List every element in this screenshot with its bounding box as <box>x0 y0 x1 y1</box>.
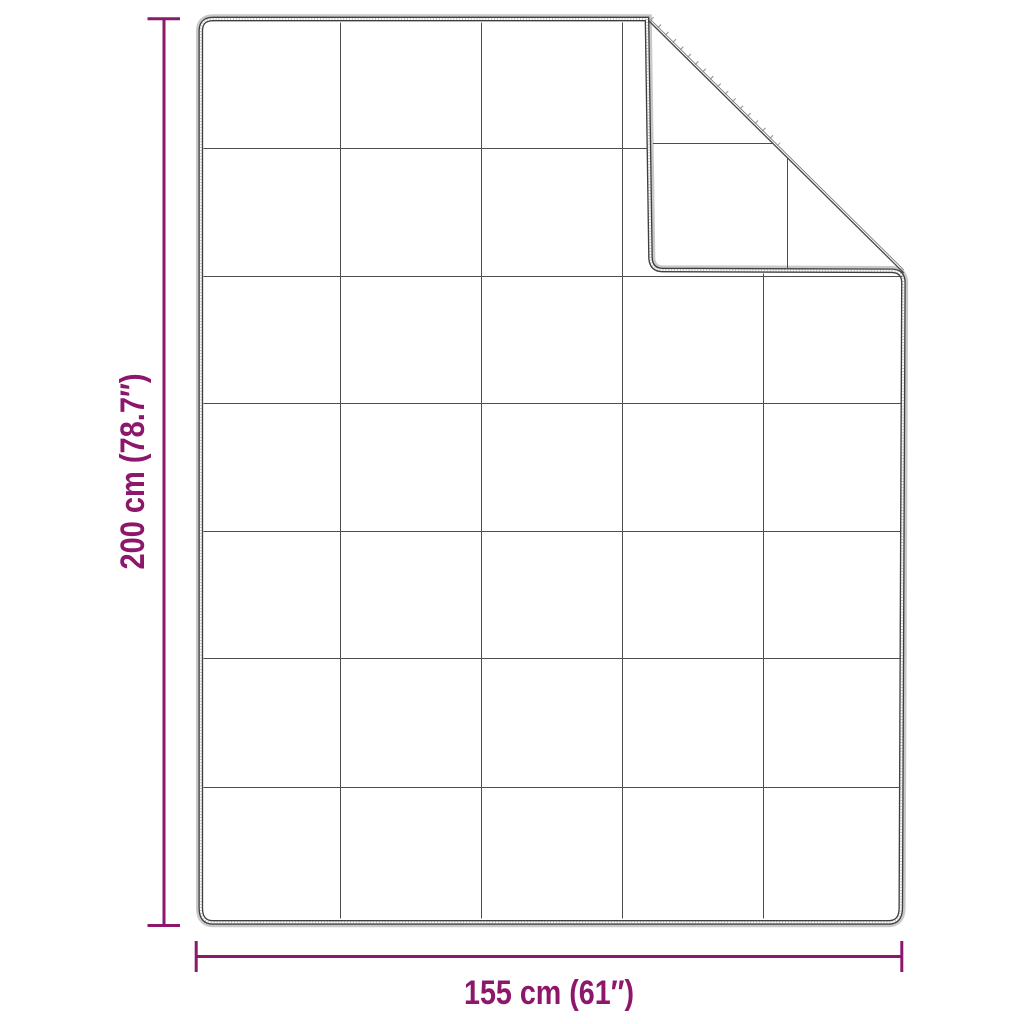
svg-text:200 cm (78.7″): 200 cm (78.7″) <box>114 374 152 570</box>
svg-text:155 cm (61″): 155 cm (61″) <box>464 974 634 1012</box>
